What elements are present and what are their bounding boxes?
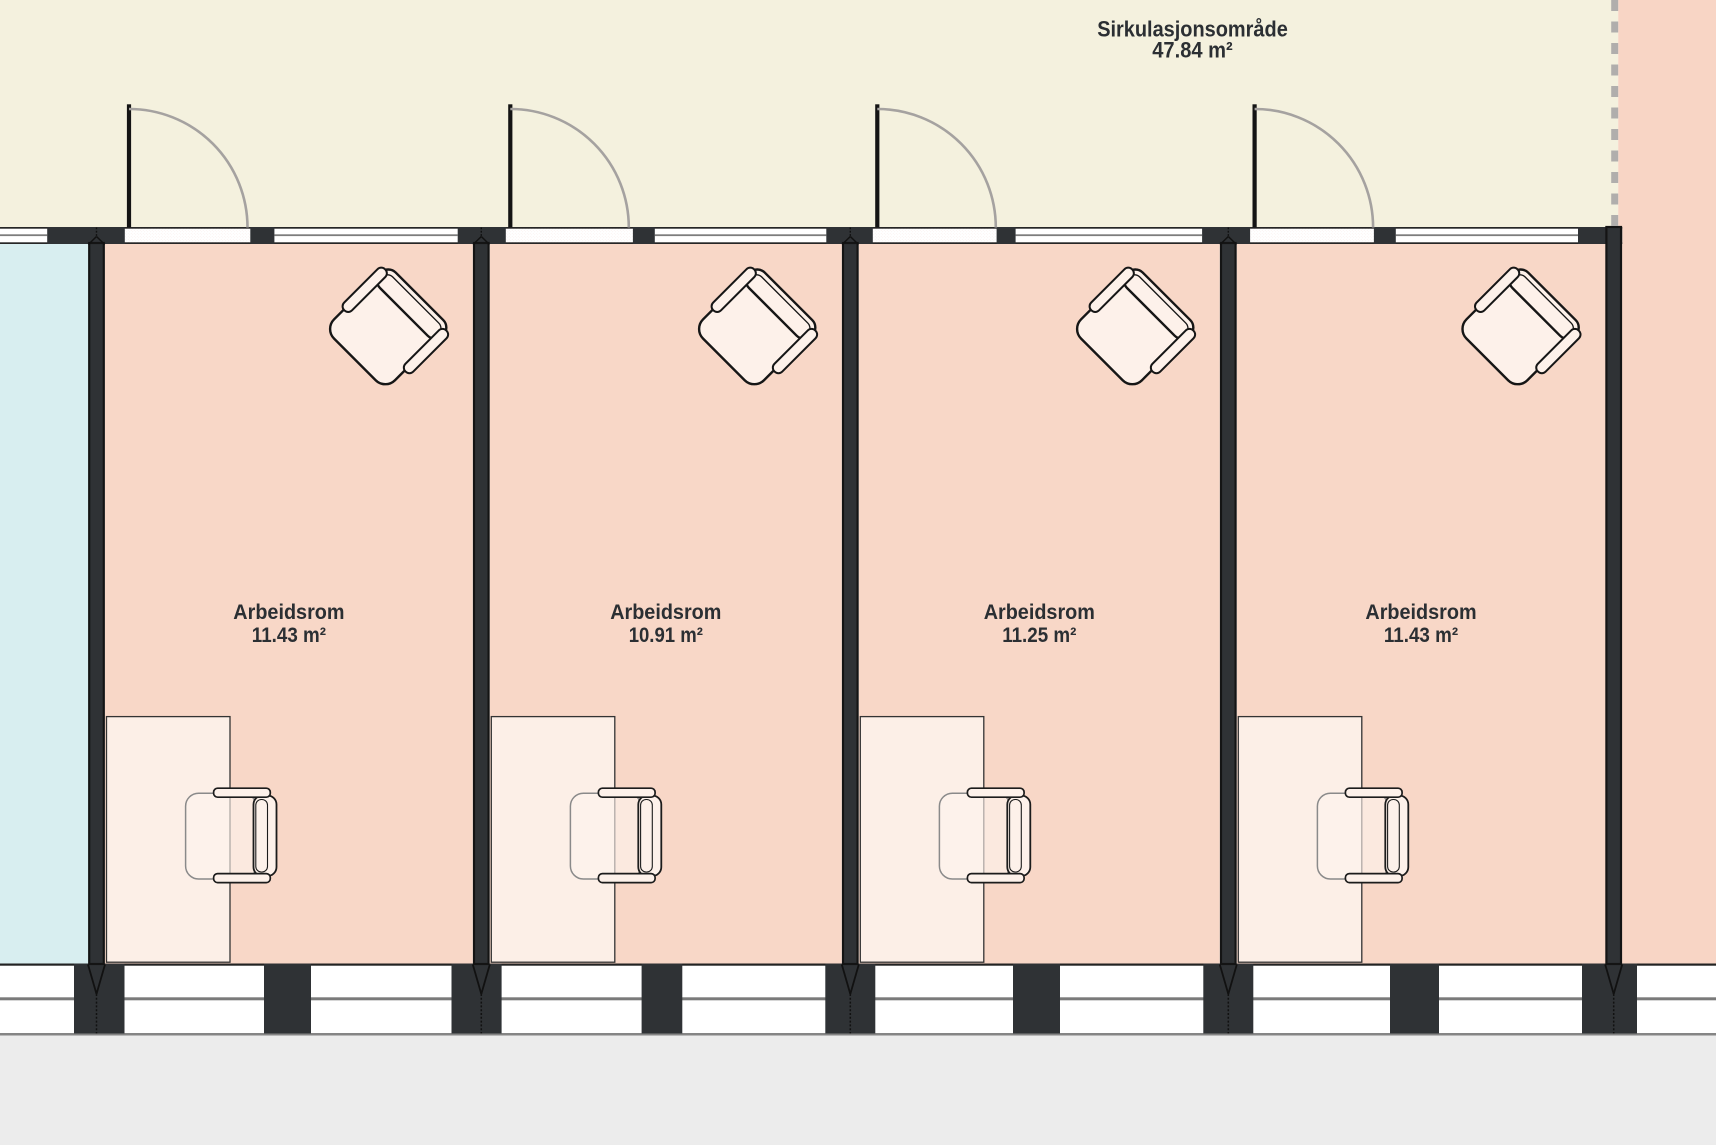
svg-text:11.25 m²: 11.25 m² bbox=[1002, 624, 1076, 647]
svg-text:11.43 m²: 11.43 m² bbox=[1384, 624, 1458, 647]
svg-text:Arbeidsrom: Arbeidsrom bbox=[233, 601, 344, 624]
svg-text:Arbeidsrom: Arbeidsrom bbox=[610, 601, 721, 624]
svg-text:Arbeidsrom: Arbeidsrom bbox=[984, 601, 1095, 624]
svg-text:10.91 m²: 10.91 m² bbox=[629, 624, 703, 647]
svg-text:11.43 m²: 11.43 m² bbox=[252, 624, 326, 647]
svg-text:47.84 m²: 47.84 m² bbox=[1152, 38, 1233, 63]
svg-text:Arbeidsrom: Arbeidsrom bbox=[1365, 601, 1476, 624]
